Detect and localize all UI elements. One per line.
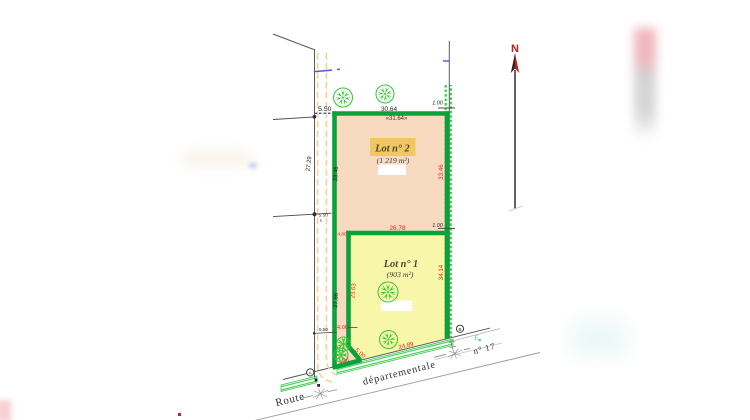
svg-text:33.46: 33.46: [438, 164, 445, 180]
svg-text:30.64: 30.64: [381, 106, 397, 113]
svg-text:B: B: [458, 327, 461, 332]
svg-text:(903 m²): (903 m²): [387, 270, 414, 279]
svg-text:33.46: 33.46: [333, 166, 340, 182]
svg-text:34.14: 34.14: [438, 264, 445, 280]
svg-text:1.00: 1.00: [432, 101, 443, 107]
svg-text:Route: Route: [274, 390, 306, 409]
svg-text:Lot n° 1: Lot n° 1: [383, 259, 418, 270]
svg-text:37.86: 37.86: [333, 292, 340, 308]
svg-text:4.80: 4.80: [337, 232, 347, 238]
svg-text:«31.64»: «31.64»: [386, 116, 408, 122]
svg-text:5.50: 5.50: [319, 327, 328, 332]
svg-text:26.78: 26.78: [390, 225, 406, 232]
svg-text:Lot n° 2: Lot n° 2: [374, 144, 409, 155]
svg-text:n° 17: n° 17: [472, 341, 496, 356]
svg-text:1.00: 1.00: [432, 223, 443, 229]
svg-text:5.50: 5.50: [319, 213, 329, 219]
svg-text:27.29: 27.29: [306, 155, 314, 171]
svg-text:(1 219 m²): (1 219 m²): [377, 156, 410, 165]
svg-text:5.50: 5.50: [318, 106, 331, 113]
svg-text:4.00: 4.00: [337, 325, 348, 331]
svg-text:E: E: [475, 336, 479, 342]
